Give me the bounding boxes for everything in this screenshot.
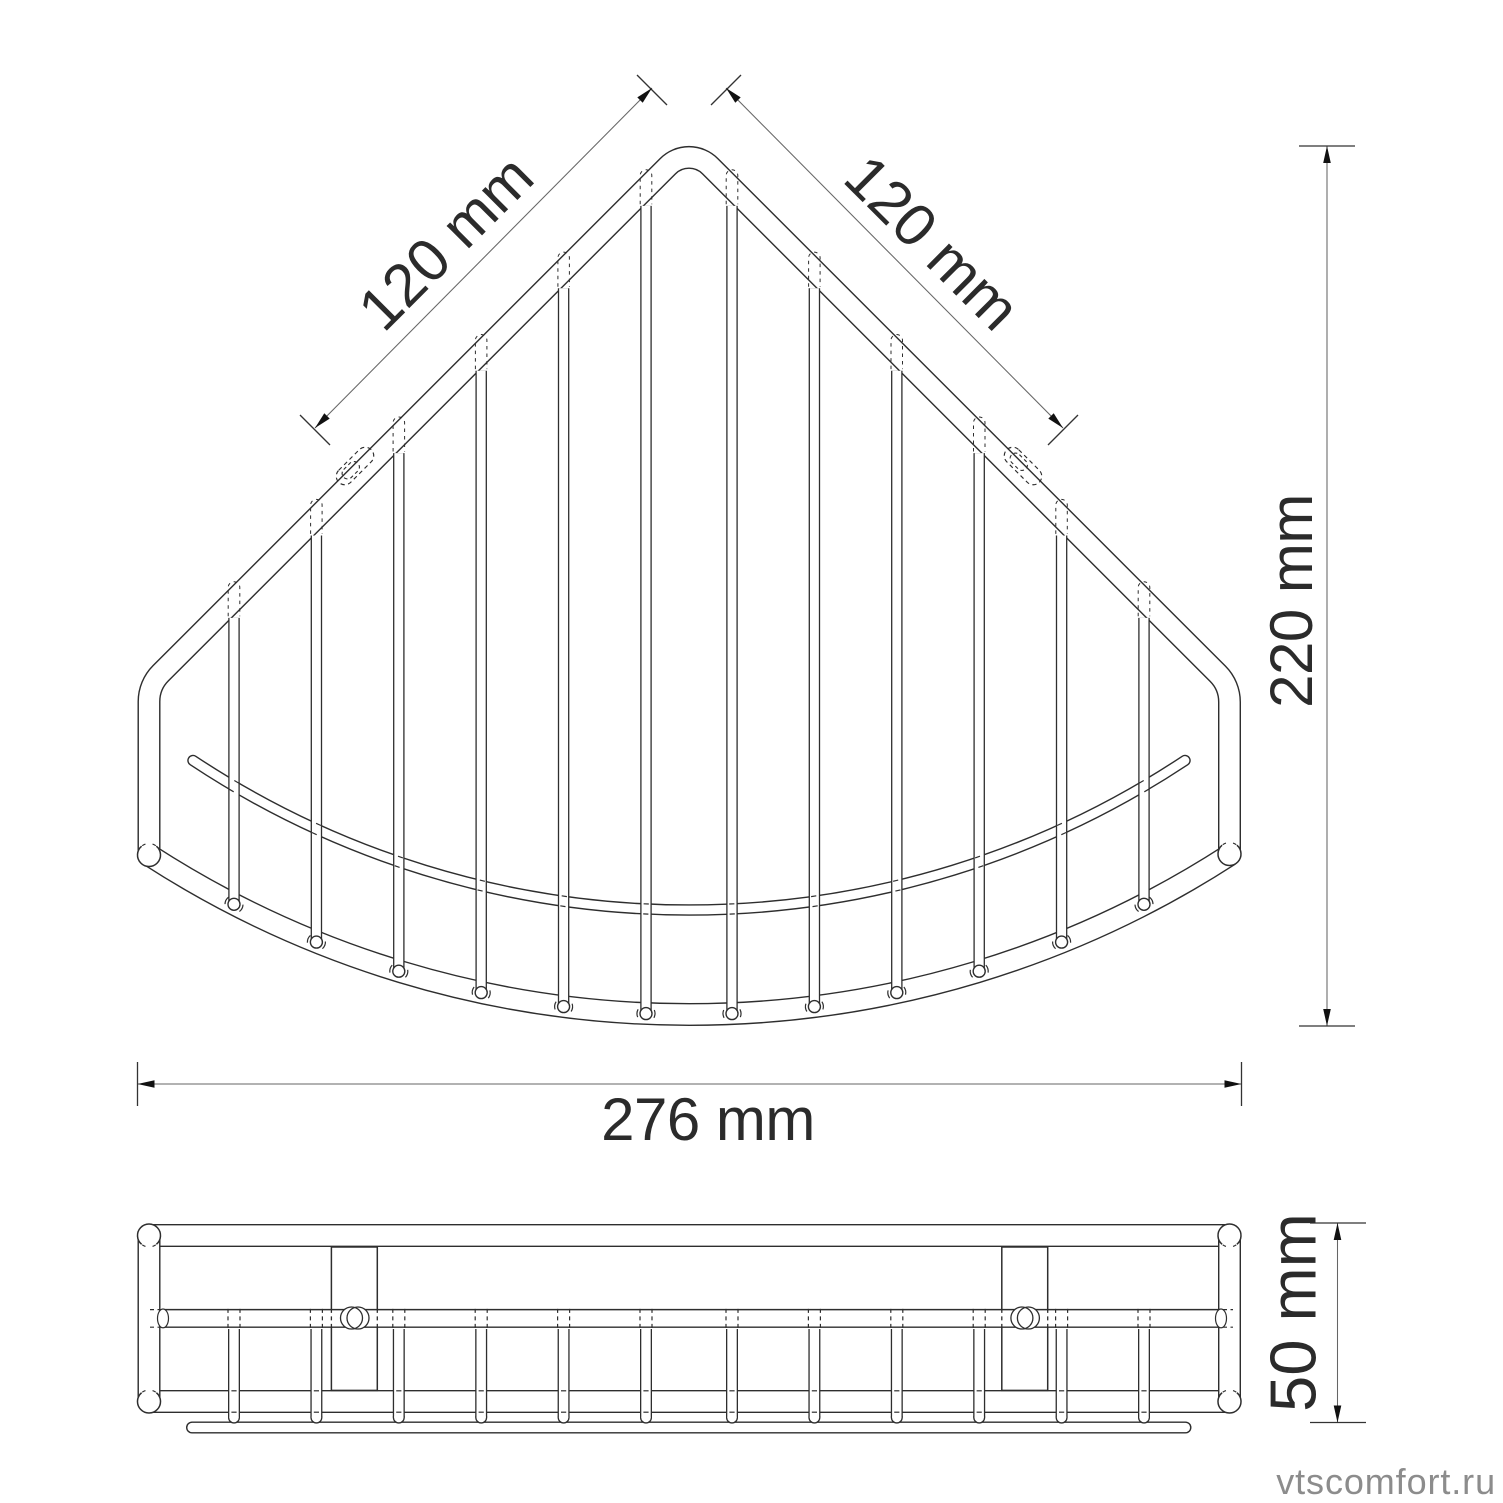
svg-text:vtscomfort.ru: vtscomfort.ru (1276, 1461, 1496, 1502)
svg-text:220 mm: 220 mm (1258, 494, 1325, 708)
svg-text:276 mm: 276 mm (601, 1086, 815, 1153)
svg-text:50 mm: 50 mm (1257, 1213, 1330, 1412)
